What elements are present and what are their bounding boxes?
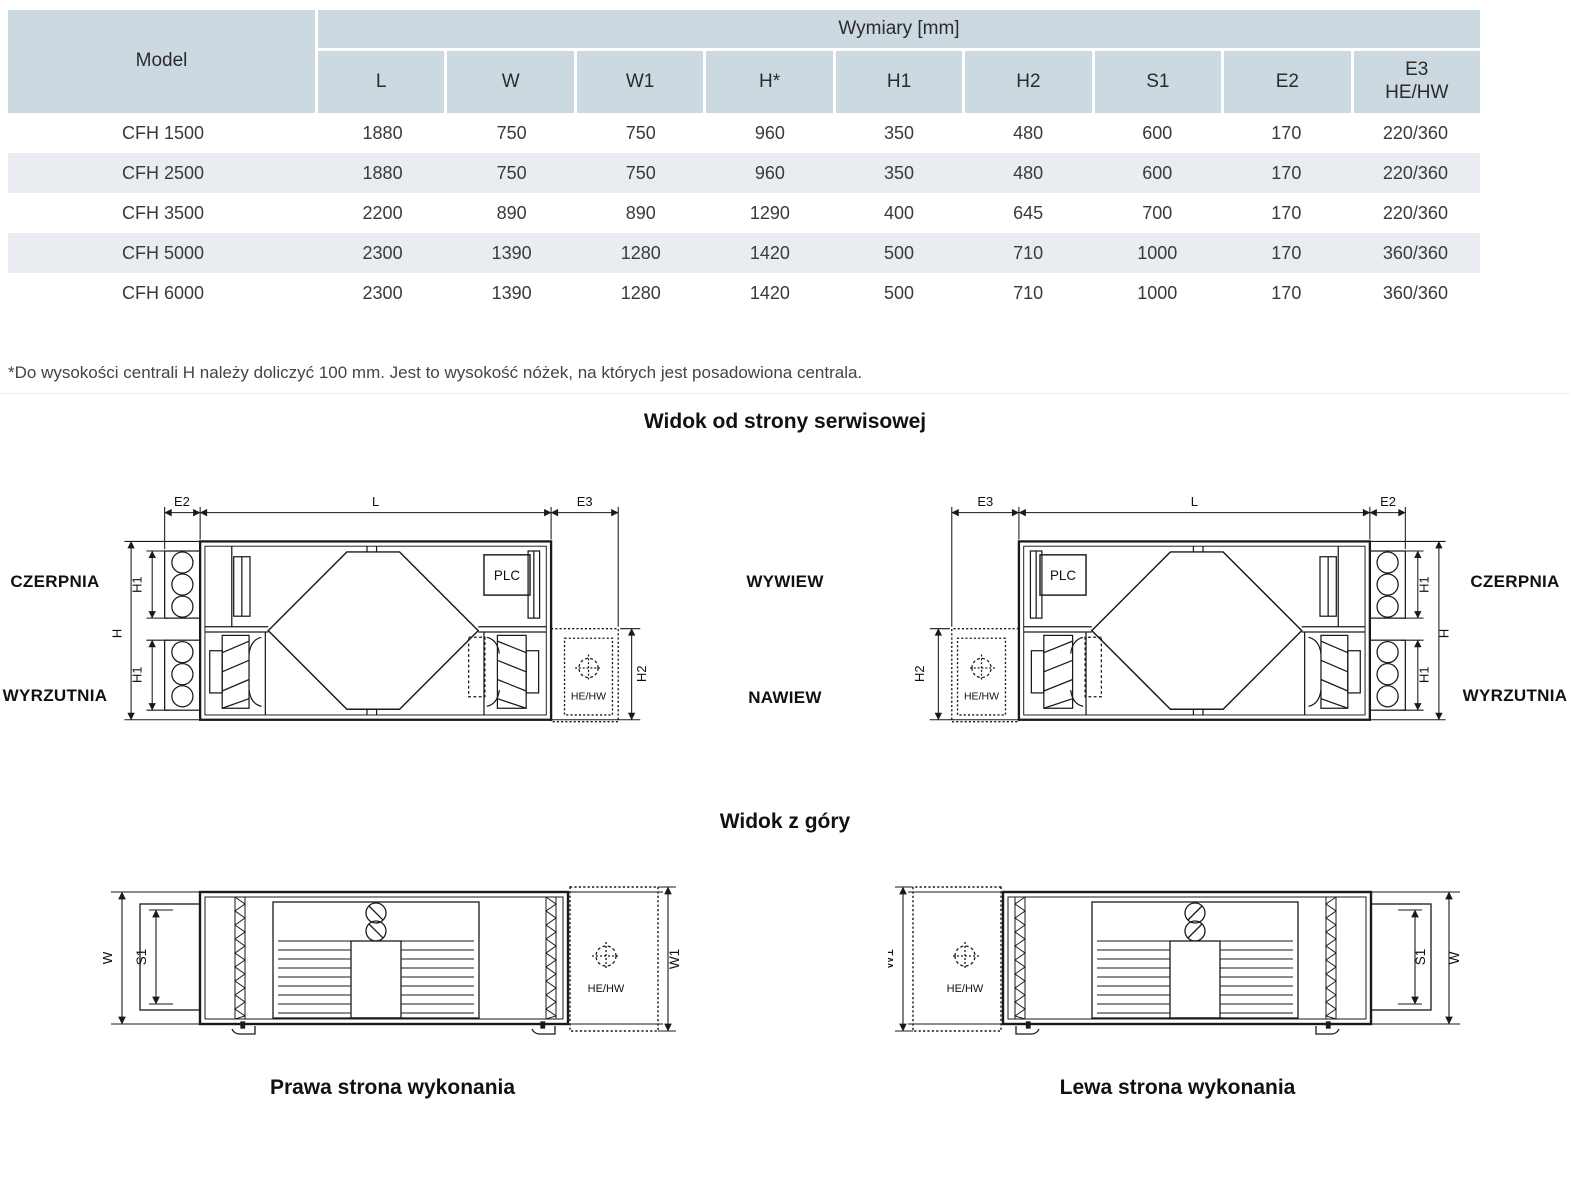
- top-view-right-unit-drawing: W S1 W1 HE/HW: [103, 870, 683, 1070]
- column-header-w: W: [447, 51, 573, 113]
- column-header-e2: E2: [1224, 51, 1350, 113]
- footnote: *Do wysokości centrali H należy doliczyć…: [8, 363, 1570, 383]
- coil-label: HE/HW: [964, 691, 999, 703]
- dim-e2: E2: [174, 494, 190, 509]
- intake-label: CZERPNIA: [1460, 572, 1570, 592]
- table-header: Model Wymiary [mm] L W W1 H* H1 H2 S1 E2…: [8, 10, 1480, 113]
- dim-h2: H2: [912, 665, 927, 682]
- column-header-s1: S1: [1095, 51, 1221, 113]
- top-view-row: W S1 W1 HE/HW W S1 W1 HE/HW: [0, 870, 1570, 1070]
- service-view-right-unit-drawing: E2 L E3 H H1 H1 H2 PLC HE/HW: [110, 456, 670, 786]
- caption-left-side: Lewa strona wykonania: [785, 1076, 1570, 1100]
- top-view-title: Widok z góry: [0, 810, 1570, 834]
- table-row: CFH 3500 2200 890 890 1290 400 645 700 1…: [8, 193, 1480, 233]
- dim-e2: E2: [1380, 494, 1396, 509]
- dim-e3: E3: [577, 494, 593, 509]
- table-row: CFH 1500 1880 750 750 960 350 480 600 17…: [8, 113, 1480, 153]
- dim-w1: W1: [888, 949, 896, 969]
- filter: [235, 897, 245, 1019]
- divider: [0, 393, 1570, 394]
- column-header-h2: H2: [965, 51, 1091, 113]
- table-body: CFH 1500 1880 750 750 960 350 480 600 17…: [8, 113, 1480, 313]
- dim-h1: H1: [130, 576, 145, 593]
- column-header-w1: W1: [577, 51, 703, 113]
- column-header-h: H*: [706, 51, 832, 113]
- intake-label: CZERPNIA: [0, 572, 110, 592]
- duct-stub: [140, 904, 200, 1010]
- dimensions-table: Model Wymiary [mm] L W W1 H* H1 H2 S1 E2…: [8, 10, 1480, 313]
- table-row: CFH 2500 1880 750 750 960 350 480 600 17…: [8, 153, 1480, 193]
- dim-l: L: [1191, 494, 1198, 509]
- dim-h: H: [110, 629, 125, 638]
- table-row: CFH 5000 2300 1390 1280 1420 500 710 100…: [8, 233, 1480, 273]
- heater-section: [570, 887, 658, 1031]
- coil-label: HE/HW: [587, 983, 624, 995]
- dim-w: W: [1447, 951, 1462, 964]
- dim-h1: H1: [1416, 576, 1431, 593]
- dim-h: H: [1436, 629, 1451, 638]
- column-header-l: L: [318, 51, 444, 113]
- dim-w1: W1: [667, 949, 682, 969]
- dim-s1: S1: [1413, 949, 1428, 966]
- drawing-labels: W S1 W1 HE/HW: [103, 949, 682, 995]
- column-header-e3: E3HE/HW: [1354, 51, 1480, 113]
- supply-label: NAWIEW: [670, 688, 900, 708]
- column-header-h1: H1: [836, 51, 962, 113]
- right-port-labels: CZERPNIA WYRZUTNIA: [1460, 456, 1570, 786]
- discharge-label: WYRZUTNIA: [0, 686, 110, 706]
- dim-e3: E3: [977, 494, 993, 509]
- service-view-title: Widok od strony serwisowej: [0, 410, 1570, 434]
- dim-w: W: [103, 951, 115, 964]
- exchanger-block: [273, 902, 479, 1018]
- dim-l: L: [372, 494, 379, 509]
- middle-port-labels: WYWIEW NAWIEW: [670, 456, 900, 786]
- service-view-left-unit-drawing: E3 L E2 H H1 H1 H2 PLC HE/HW: [900, 456, 1460, 786]
- dim-h1: H1: [1416, 666, 1431, 683]
- coil-label: HE/HW: [946, 983, 983, 995]
- extract-label: WYWIEW: [670, 572, 900, 592]
- unit-casing: [200, 892, 568, 1024]
- dim-h2: H2: [634, 665, 649, 682]
- plc-label: PLC: [1050, 568, 1076, 583]
- coil-label: HE/HW: [571, 691, 606, 703]
- drawing-captions: Prawa strona wykonania Lewa strona wykon…: [0, 1076, 1570, 1100]
- duct-connectors: [165, 551, 200, 710]
- caption-right-side: Prawa strona wykonania: [0, 1076, 785, 1100]
- dim-h1: H1: [130, 666, 145, 683]
- dim-s1: S1: [134, 949, 149, 966]
- fan: [469, 635, 539, 708]
- service-view-row: CZERPNIA WYRZUTNIA: [0, 456, 1570, 786]
- plc-label: PLC: [494, 568, 520, 583]
- heater-section: [551, 629, 618, 722]
- discharge-label: WYRZUTNIA: [1460, 686, 1570, 706]
- heat-exchanger: [268, 546, 478, 715]
- table-row: CFH 6000 2300 1390 1280 1420 500 710 100…: [8, 273, 1480, 313]
- left-port-labels: CZERPNIA WYRZUTNIA: [0, 456, 110, 786]
- fan-top-view: [366, 903, 386, 941]
- column-header-model: Model: [8, 10, 315, 113]
- fan: [210, 635, 262, 708]
- exchanger-fins: [278, 941, 474, 1018]
- top-view-left-unit-drawing: W S1 W1 HE/HW: [888, 870, 1468, 1070]
- column-group-header: Wymiary [mm]: [318, 10, 1480, 48]
